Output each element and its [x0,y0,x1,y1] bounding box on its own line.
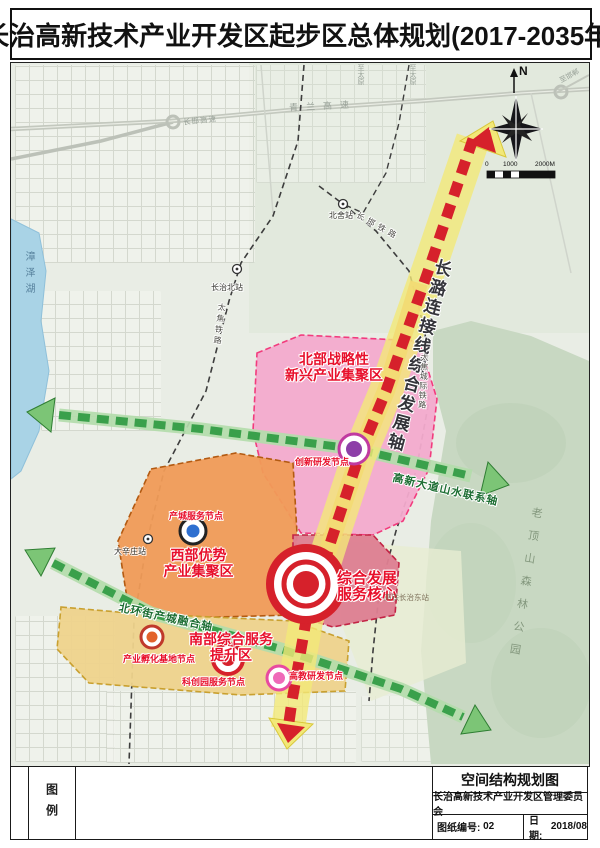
zone-west-label: 西部优势 产业集聚区 [136,547,261,579]
scale-label-0: 0 [485,161,489,168]
zone-core-line1: 综合发展 [337,571,427,587]
lake-label: 漳泽湖 [21,251,36,299]
zone-west-line1: 西部优势 [136,547,261,563]
map-title-bar: 长治高新技术产业开发区起步区总体规划(2017-2035年) [10,8,592,60]
core-target-symbol [270,548,342,620]
forest-mottle [491,628,589,738]
station-changzhi-east-label: 高铁长治东站 [384,592,429,603]
divider [75,767,76,839]
date-cell: 日期: 2018/08 [529,814,587,839]
sheet-number-value: 02 [483,821,494,832]
page: 长治高新技术产业开发区起步区总体规划(2017-2035年) [0,0,600,848]
zone-north-line1: 北部战略性 [249,351,419,367]
to-taiyuan-label-a: 至太原 [355,64,365,85]
date-value: 2018/08 [551,821,587,832]
station-changzhi-north-icon [233,265,242,274]
organization-name: 长治高新技术产业开发区管理委员会 [433,792,587,814]
station-daxinzhuang-icon [144,535,153,544]
sheet-number-cell: 图纸编号: 02 [437,814,523,839]
station-changzhi-north-label: 长治北站 [211,282,243,293]
page-title: 长治高新技术产业开发区起步区总体规划(2017-2035年) [0,16,600,53]
node-education-label: 高教研发节点 [289,669,343,682]
green-axis-b-arrow-west [25,548,55,576]
compass-north-label: N [519,64,528,78]
station-beishe-label: 北舍站 [329,210,353,221]
divider [28,767,29,839]
minor-road [531,93,571,273]
node-education [267,666,291,690]
node-industry-city-label: 产城服务节点 [169,509,223,522]
station-beishe-icon [339,200,348,209]
zone-south-line1: 南部综合服务 [156,631,306,647]
zone-west-line2: 产业集聚区 [136,563,261,579]
sheet-number-label: 图纸编号: [437,819,480,834]
node-incubator-label: 产业孵化基地节点 [123,652,195,665]
node-innovation-label: 创新研发节点 [295,455,349,468]
node-sci-park-label: 科创园服务节点 [182,675,245,688]
date-label: 日期: [529,812,548,842]
minor-road [261,65,273,213]
station-daxinzhuang-label: 大辛庄站 [114,546,146,557]
legend-title: 图例 [35,777,69,831]
zone-north-line2: 新兴产业集聚区 [249,367,419,383]
forest-mottle [456,403,566,483]
sheet-footer: 图例 空间结构规划图 长治高新技术产业开发区管理委员会 图纸编号: 02 日期:… [10,766,588,840]
scale-bar [487,171,555,178]
to-taiyuan-label-b: 至太原 [407,64,417,85]
zone-north-label: 北部战略性 新兴产业集聚区 [249,351,419,383]
scale-label-2000: 2000M [535,161,555,168]
railway-branch [343,65,409,213]
map-canvas[interactable]: 北部战略性 新兴产业集聚区 西部优势 产业集聚区 南部综合服务 提升区 综合发展… [10,62,590,767]
scale-label-1000: 1000 [503,161,517,168]
